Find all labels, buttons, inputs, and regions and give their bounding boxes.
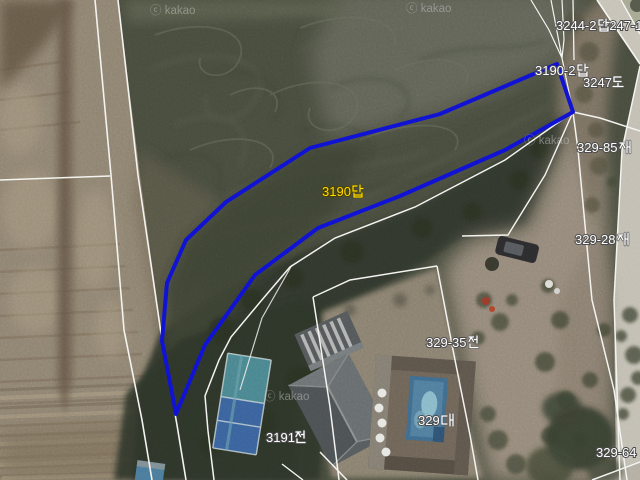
svg-text:3244-2: 3244-2 (556, 18, 596, 33)
svg-text:3190: 3190 (322, 184, 351, 199)
svg-text:3191: 3191 (266, 430, 295, 445)
svg-text:ⓒ kakao: ⓒ kakao (264, 390, 309, 403)
svg-text:3190-2: 3190-2 (535, 63, 575, 78)
svg-text:ⓒ kakao: ⓒ kakao (524, 134, 569, 147)
svg-text:329-35: 329-35 (426, 335, 466, 350)
svg-text:329-28: 329-28 (575, 232, 615, 247)
svg-text:ⓒ kakao: ⓒ kakao (150, 4, 195, 17)
svg-text:ⓒ kakao: ⓒ kakao (406, 2, 451, 15)
svg-text:329: 329 (418, 413, 440, 428)
svg-text:329-85: 329-85 (577, 140, 617, 155)
svg-text:329-64: 329-64 (596, 445, 636, 460)
